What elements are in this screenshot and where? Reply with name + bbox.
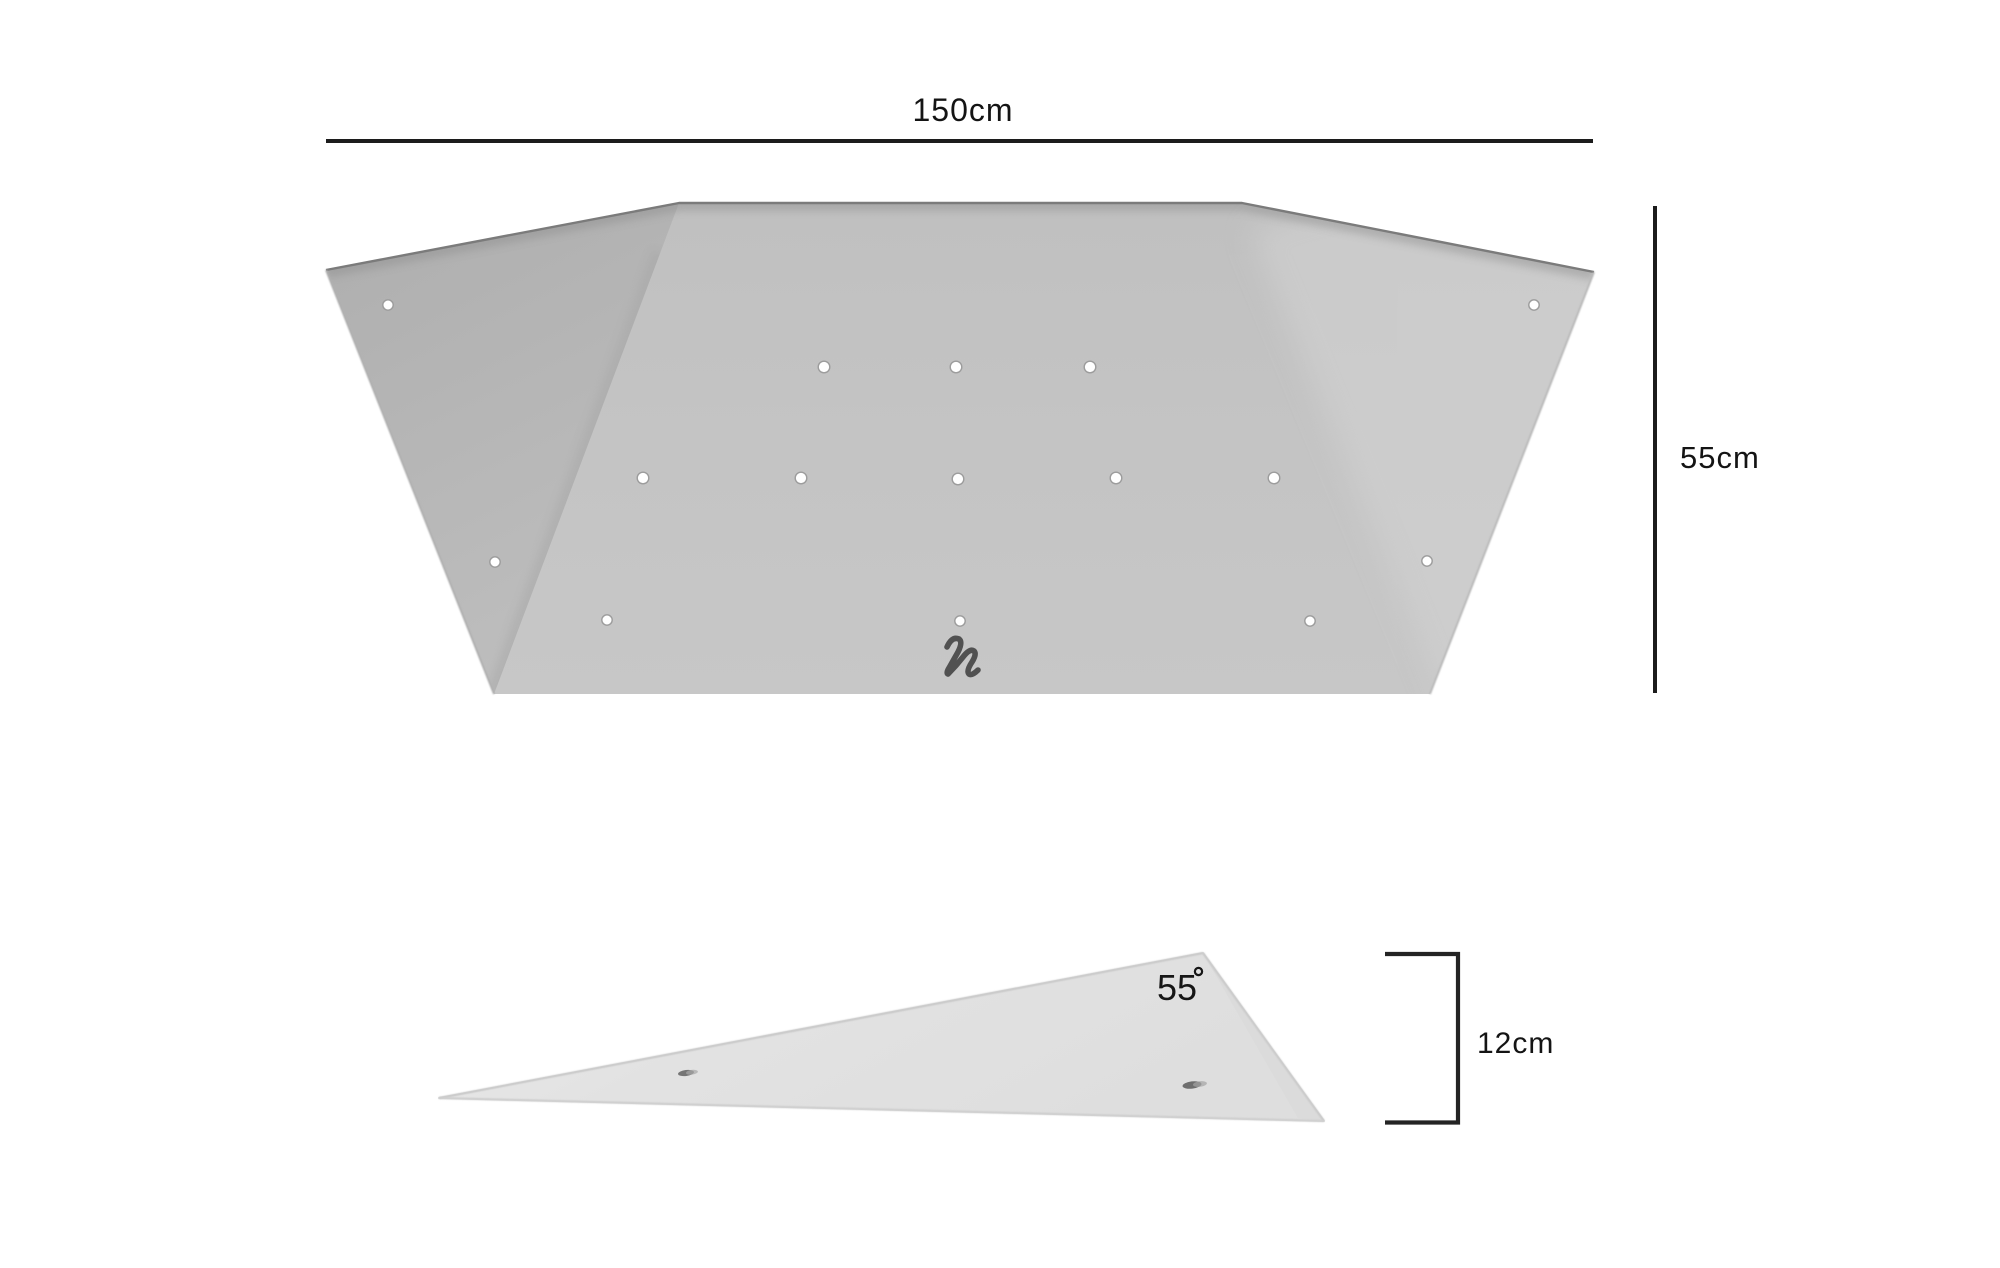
- svg-text:12cm: 12cm: [1477, 1027, 1554, 1060]
- svg-text:55cm: 55cm: [1680, 440, 1760, 475]
- svg-text:150cm: 150cm: [912, 92, 1013, 128]
- svg-text:55: 55: [1157, 967, 1197, 1008]
